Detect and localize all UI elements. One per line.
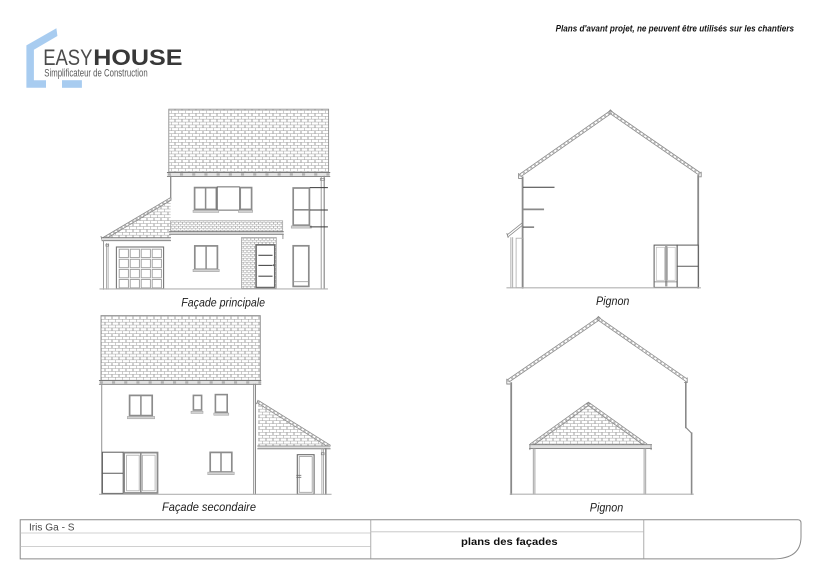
svg-text:plans des façades: plans des façades xyxy=(461,537,558,548)
svg-text:EASY: EASY xyxy=(43,45,93,70)
svg-text:Plans d'avant projet, ne peuve: Plans d'avant projet, ne peuvent être ut… xyxy=(556,24,794,34)
svg-text:HOUSE: HOUSE xyxy=(93,45,182,70)
svg-text:Pignon: Pignon xyxy=(590,501,623,514)
svg-text:Pignon: Pignon xyxy=(596,295,629,308)
svg-text:Façade secondaire: Façade secondaire xyxy=(162,501,257,514)
svg-text:Iris Ga - S: Iris Ga - S xyxy=(29,522,75,533)
svg-text:Façade principale: Façade principale xyxy=(181,296,265,309)
svg-text:Simplificateur de Construction: Simplificateur de Construction xyxy=(44,68,147,80)
